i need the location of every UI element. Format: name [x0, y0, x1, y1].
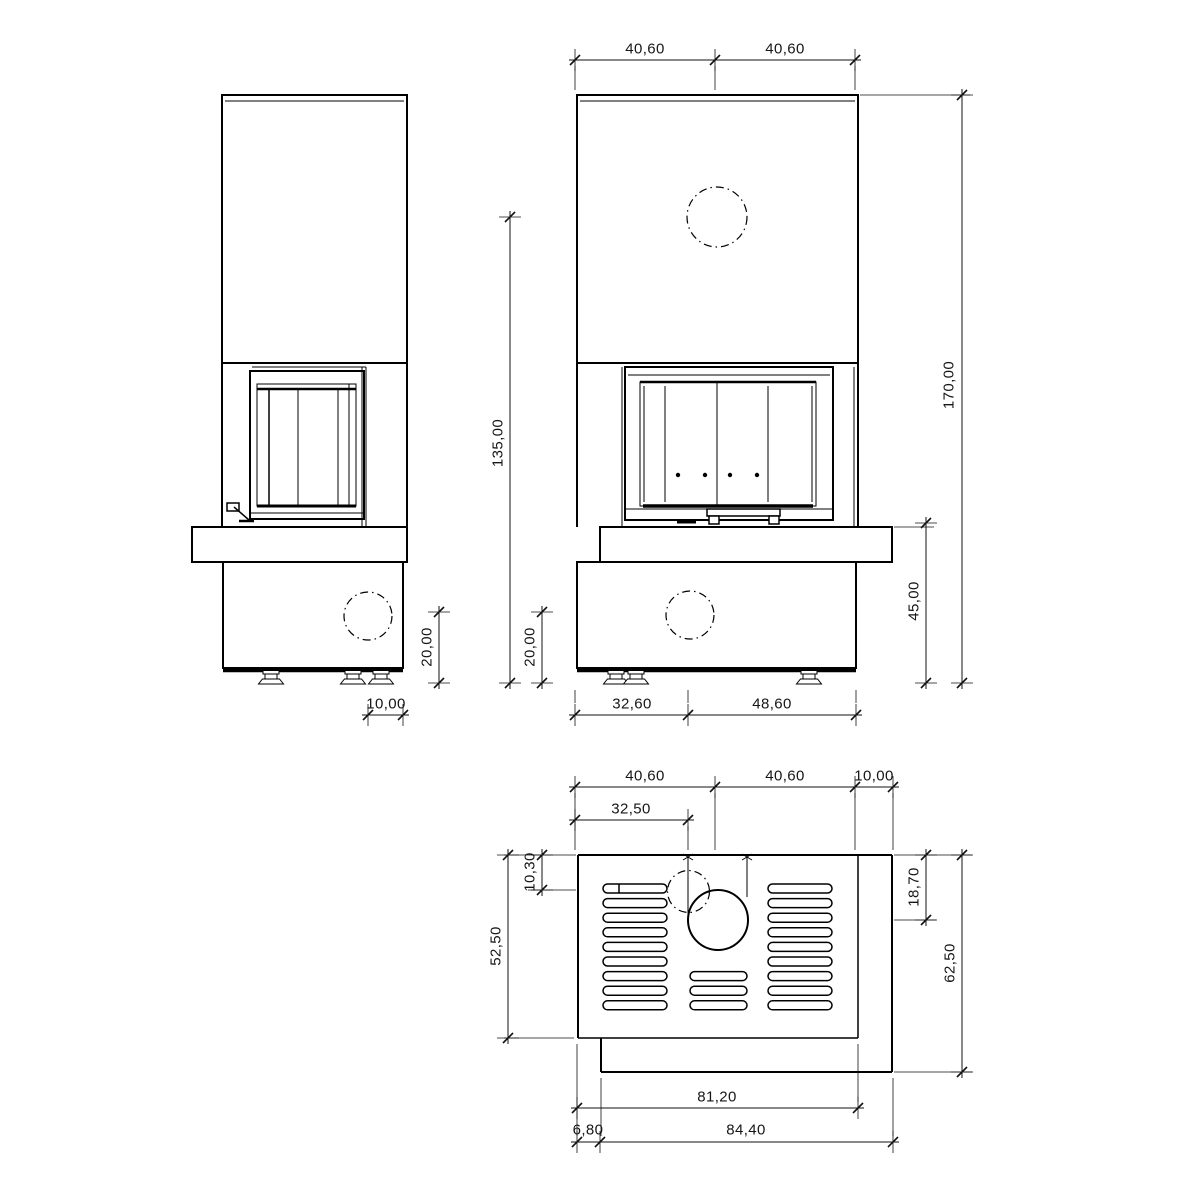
drawing-svg: [0, 0, 1200, 1200]
adjustable-feet-side: [259, 671, 394, 685]
dim-front-base-right: 48,60: [752, 697, 792, 712]
front-base: [577, 562, 856, 668]
adjustable-feet-front: [604, 671, 822, 685]
dim-plan-body-depth: 52,50: [489, 926, 504, 966]
plan-view: [578, 854, 892, 1072]
dim-plan-overhang: 10,00: [854, 769, 894, 784]
dim-plan-intake-offset-y: 10,30: [523, 852, 538, 892]
dim-plan-bench-width: 84,40: [726, 1123, 766, 1138]
front-door-handle: [677, 509, 780, 524]
dim-plan-flue-offset-y: 18,70: [907, 867, 922, 907]
dim-front-base-left: 32,60: [612, 697, 652, 712]
dim-plan-width-right: 40,60: [765, 769, 805, 784]
vent-slots-left: [603, 884, 667, 1010]
front-door-frame: [625, 367, 833, 520]
side-door-frame: [250, 367, 366, 527]
air-intake-circle-side: [344, 592, 392, 640]
side-base: [223, 562, 403, 668]
front-view: [577, 95, 892, 684]
vent-slots-right: [768, 884, 832, 1010]
flue-outlet-circle: [687, 187, 747, 247]
dim-total-height: 170,00: [942, 361, 957, 409]
side-view: [192, 95, 407, 684]
dim-plan-total-depth: 62,50: [943, 943, 958, 983]
dim-plan-bench-inset: 6,80: [573, 1123, 604, 1138]
dim-front-width-right: 40,60: [765, 42, 805, 57]
front-bench: [600, 527, 892, 562]
dim-front-intake-height: 20,00: [523, 627, 538, 667]
dim-side-intake-offset: 10,00: [366, 697, 406, 712]
dim-plan-flue-offset-x: 32,50: [611, 802, 651, 817]
dim-side-intake-height: 20,00: [420, 627, 435, 667]
dim-plan-body-width: 81,20: [697, 1090, 737, 1105]
dim-front-width-left: 40,60: [625, 42, 665, 57]
vent-slots-middle: [690, 972, 747, 1010]
technical-drawing-canvas: 40,60 40,60 10,00 32,60 48,60 40,60 40,6…: [0, 0, 1200, 1200]
dim-firebox-height: 135,00: [491, 419, 506, 467]
dim-plan-width-left: 40,60: [625, 769, 665, 784]
side-bench: [192, 527, 407, 562]
dim-bench-height: 45,00: [907, 581, 922, 621]
air-intake-circle-front: [666, 591, 714, 639]
dimension-lines: [362, 49, 973, 1153]
flue-pipe-circle-plan: [688, 890, 748, 950]
flue-tangent-lines: [683, 854, 752, 915]
